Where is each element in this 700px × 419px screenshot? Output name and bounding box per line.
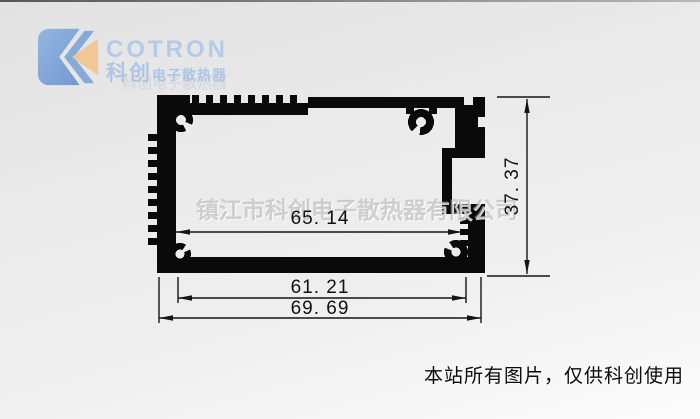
top-right-block (455, 97, 485, 148)
top-fins (192, 95, 297, 104)
dim-label-inner-width: 65. 14 (260, 208, 380, 230)
footer-notice: 本站所有图片，仅供科创使用 (424, 361, 684, 388)
left-fins (148, 134, 157, 245)
dim-label-overall-height: 37. 37 (502, 126, 524, 246)
bottom-wall (157, 257, 485, 273)
right-upper-shelf (442, 148, 485, 158)
profile-cross-section (148, 95, 485, 273)
dim-label-overall-width: 69. 69 (260, 298, 380, 320)
screw-boss-top-right (406, 106, 437, 140)
dim-label-bottom-inner-width: 61. 21 (260, 277, 380, 299)
page: COTRON 科创电子散热器 科创电子散热器 (0, 0, 700, 419)
dimension-inner-width (176, 229, 462, 234)
